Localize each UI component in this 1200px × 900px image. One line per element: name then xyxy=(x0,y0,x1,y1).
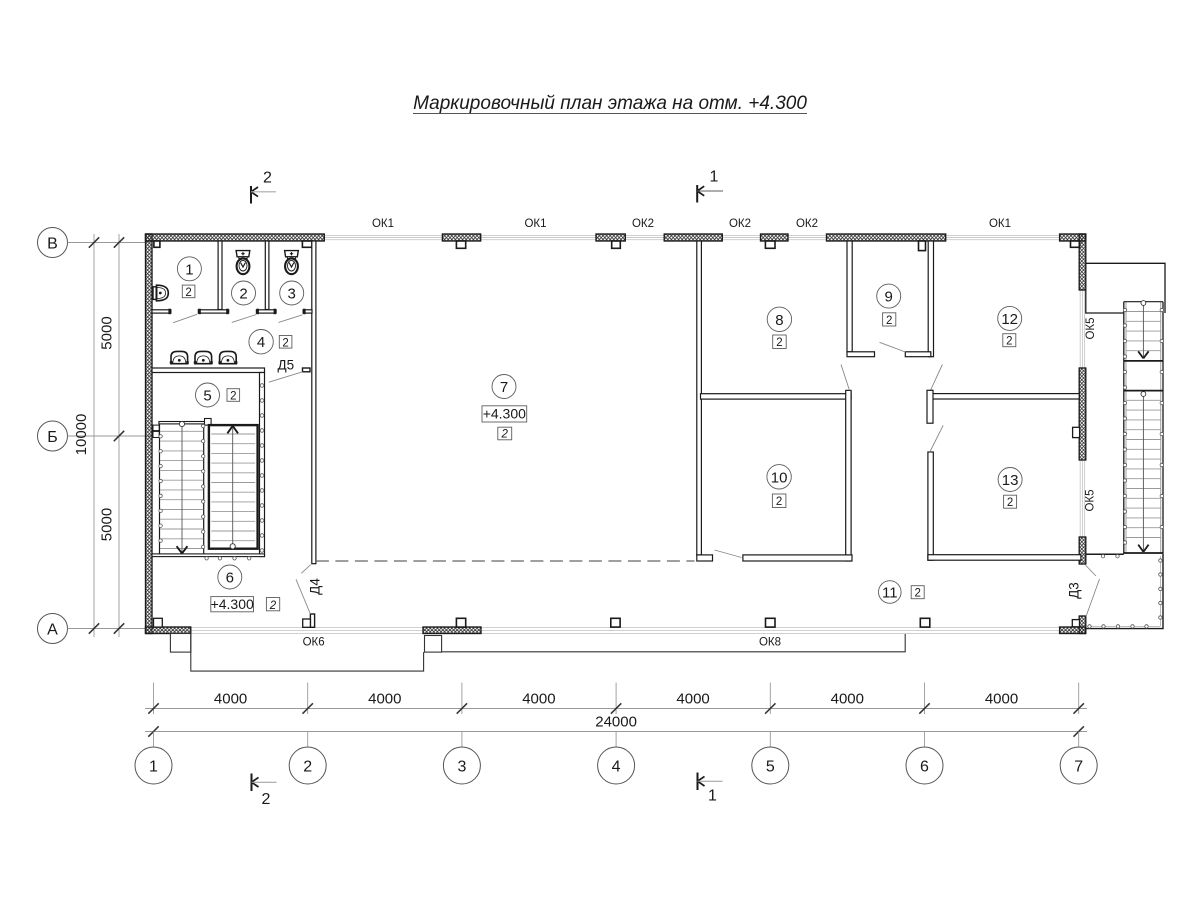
svg-text:В: В xyxy=(47,236,58,253)
svg-text:+4.300: +4.300 xyxy=(483,406,526,422)
svg-text:4000: 4000 xyxy=(214,691,247,708)
svg-text:12: 12 xyxy=(1001,311,1018,328)
svg-text:2: 2 xyxy=(1007,497,1013,509)
svg-text:Д4: Д4 xyxy=(308,578,323,595)
svg-text:7: 7 xyxy=(1074,759,1083,776)
svg-text:8: 8 xyxy=(775,312,783,329)
svg-text:5000: 5000 xyxy=(99,316,116,349)
svg-text:1: 1 xyxy=(185,261,193,278)
svg-text:2: 2 xyxy=(776,337,782,349)
svg-text:2: 2 xyxy=(303,759,312,776)
svg-text:1: 1 xyxy=(708,788,717,805)
svg-text:ОК1: ОК1 xyxy=(372,218,394,230)
svg-text:ОК8: ОК8 xyxy=(759,637,781,649)
svg-text:2: 2 xyxy=(269,600,277,612)
svg-text:24000: 24000 xyxy=(595,714,637,731)
svg-text:Д5: Д5 xyxy=(277,357,294,372)
svg-text:Б: Б xyxy=(47,429,58,446)
svg-text:ОК2: ОК2 xyxy=(632,218,654,230)
svg-text:ОК6: ОК6 xyxy=(303,637,325,649)
svg-text:4000: 4000 xyxy=(985,691,1018,708)
svg-text:7: 7 xyxy=(500,379,508,396)
svg-text:1: 1 xyxy=(149,759,158,776)
svg-text:2: 2 xyxy=(282,337,288,349)
svg-text:2: 2 xyxy=(914,588,920,600)
svg-text:4000: 4000 xyxy=(831,691,864,708)
svg-text:4: 4 xyxy=(257,334,265,351)
svg-text:2: 2 xyxy=(886,315,892,327)
svg-text:2: 2 xyxy=(239,286,247,303)
svg-text:6: 6 xyxy=(226,570,234,587)
svg-text:2: 2 xyxy=(500,429,508,441)
svg-text:1: 1 xyxy=(710,169,719,186)
svg-text:5: 5 xyxy=(203,388,211,405)
svg-text:4000: 4000 xyxy=(522,691,555,708)
svg-text:10: 10 xyxy=(771,469,788,486)
svg-text:3: 3 xyxy=(457,759,466,776)
svg-text:ОК2: ОК2 xyxy=(796,218,818,230)
svg-text:5: 5 xyxy=(766,759,775,776)
svg-text:4: 4 xyxy=(612,759,621,776)
svg-text:9: 9 xyxy=(885,289,893,306)
svg-text:ОК5: ОК5 xyxy=(1085,317,1097,339)
svg-text:4000: 4000 xyxy=(368,691,401,708)
svg-text:2: 2 xyxy=(1006,336,1012,348)
svg-text:ОК5: ОК5 xyxy=(1085,489,1097,511)
svg-text:+4.300: +4.300 xyxy=(211,596,254,612)
svg-text:2: 2 xyxy=(230,391,236,403)
svg-text:ОК1: ОК1 xyxy=(524,218,546,230)
svg-text:А: А xyxy=(47,622,58,639)
svg-text:ОК2: ОК2 xyxy=(729,218,751,230)
svg-text:2: 2 xyxy=(776,496,782,508)
svg-text:2: 2 xyxy=(263,170,272,187)
svg-text:5000: 5000 xyxy=(99,508,116,541)
svg-text:Маркировочный план этажа на от: Маркировочный план этажа на отм. +4.300 xyxy=(413,93,807,114)
svg-text:2: 2 xyxy=(262,791,271,808)
svg-text:ОК1: ОК1 xyxy=(989,218,1011,230)
svg-text:Д3: Д3 xyxy=(1066,582,1081,599)
svg-text:2: 2 xyxy=(185,287,191,299)
svg-text:11: 11 xyxy=(882,585,898,602)
svg-text:13: 13 xyxy=(1002,472,1019,489)
svg-text:4000: 4000 xyxy=(676,691,709,708)
svg-text:3: 3 xyxy=(288,286,296,303)
svg-text:10000: 10000 xyxy=(73,414,90,456)
svg-text:6: 6 xyxy=(920,759,929,776)
